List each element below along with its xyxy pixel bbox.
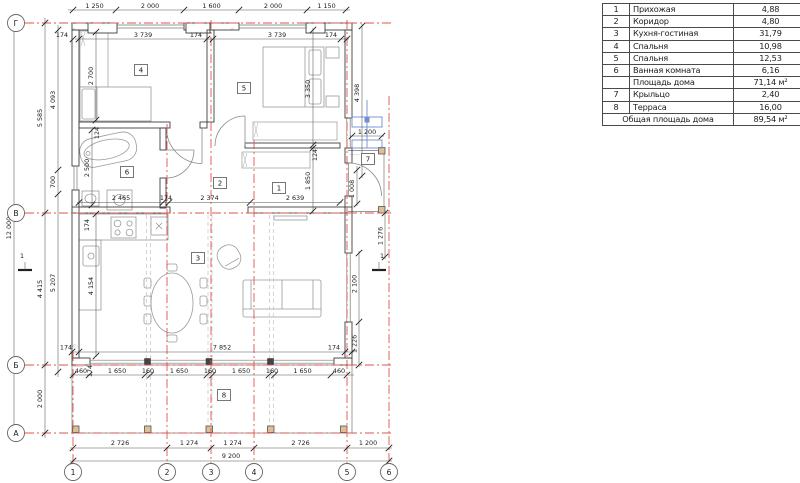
table-row: 6 Ванная комната 6,16: [603, 65, 800, 77]
dim-label: 4 398: [353, 84, 361, 102]
table-row: 1 Прихожая 4,88: [603, 4, 800, 16]
window: [74, 166, 77, 190]
area-table-grid: 1 Прихожая 4,88 2 Коридор 4,80 3 Кухня-г…: [602, 3, 800, 126]
wall: [245, 143, 340, 148]
dim-label: 1 600: [202, 2, 220, 10]
dim-label: 460: [333, 367, 345, 375]
section-label: 1: [20, 252, 24, 260]
floorplan-drawing: 1 250 2 000 1 600 2 000 1 150 174 3 739 …: [0, 0, 600, 483]
room-num-cell: 7: [603, 89, 630, 101]
dim-label: 5 207: [49, 274, 57, 292]
room-num-cell: 1: [603, 4, 630, 16]
door-arc: [167, 128, 203, 164]
table-row: 5 Спальня 12,53: [603, 52, 800, 64]
room-number: 6: [125, 169, 130, 177]
table-row: 3 Кухня-гостиная 31,79: [603, 28, 800, 40]
table-total-row: Общая площадь дома 89,54 м²: [603, 113, 800, 125]
chair-icon: [200, 296, 207, 306]
wall: [248, 207, 352, 213]
chair-icon: [144, 296, 151, 306]
room-area-cell: 4,80: [734, 16, 800, 28]
dim-label: 1 650: [108, 367, 126, 375]
room-area-cell: 4,88: [734, 4, 800, 16]
wall: [160, 128, 166, 150]
axis-bubble-label: 2: [165, 468, 170, 477]
room-number: 8: [222, 392, 226, 400]
dim-label: 160: [142, 367, 154, 375]
dim-label: 2 374: [200, 194, 218, 202]
wall: [207, 30, 214, 122]
room-name-cell: Ванная комната: [630, 65, 734, 77]
dim-label: 1 226: [351, 335, 359, 353]
room-number: 7: [366, 156, 370, 164]
terrace-post: [73, 426, 80, 433]
chair-icon: [200, 278, 207, 288]
dim-label: 1 150: [317, 2, 335, 10]
dim-label: 160: [204, 367, 216, 375]
wardrobe-icon: [253, 122, 337, 140]
dim-label: 174: [86, 365, 94, 377]
room-area-cell: 31,79: [734, 28, 800, 40]
dining-table-icon: [151, 273, 193, 333]
room-name-cell: Крыльцо: [630, 89, 734, 101]
dim-label: 1 650: [170, 367, 188, 375]
axis-bubble-label: 3: [209, 468, 214, 477]
wall: [200, 122, 207, 128]
total-value-cell: 89,54 м²: [734, 113, 800, 125]
room-name-cell: Спальня: [630, 52, 734, 64]
axis-bubble-label: Г: [14, 19, 19, 28]
chair-icon: [167, 335, 177, 342]
room-area-cell: 71,14 м²: [734, 77, 800, 89]
dim-label: 2 700: [87, 67, 95, 85]
axis-bubble-label: 6: [387, 468, 392, 477]
axis-bubble-label: 1: [71, 468, 76, 477]
wall: [345, 148, 352, 163]
pillow-icon: [309, 50, 321, 75]
dim-label: 174: [328, 344, 340, 352]
dim-label: 2 639: [286, 194, 304, 202]
wall: [72, 207, 170, 213]
dim-label: 9 200: [222, 452, 240, 460]
room-num-cell: 4: [603, 40, 630, 52]
wall: [345, 196, 352, 253]
dim-label: 7 852: [213, 344, 231, 352]
dim-label: 2 000: [36, 390, 44, 408]
room-num-cell: 8: [603, 101, 630, 113]
wall: [72, 358, 90, 365]
door-bathroom: [166, 150, 194, 178]
room-name-cell: Коридор: [630, 16, 734, 28]
dim-label: 2 500: [83, 159, 91, 177]
dim-label: 2 100: [351, 275, 359, 293]
dim-label: 1 650: [232, 367, 250, 375]
dim-label: 3 739: [268, 31, 286, 39]
dim-label: 4 093: [49, 91, 57, 109]
axis-bubble-label: 4: [252, 468, 257, 477]
room-name-cell: Прихожая: [630, 4, 734, 16]
dim-label: 174: [325, 31, 337, 39]
door-room5: [215, 116, 245, 146]
room-num-cell: [603, 77, 630, 89]
dim-label: 124: [311, 149, 319, 161]
wall: [72, 30, 79, 166]
room-area-cell: 10,98: [734, 40, 800, 52]
washbasin-icon: [82, 191, 99, 206]
chair-icon: [144, 314, 151, 324]
sink-icon: [83, 246, 99, 266]
dim-label: 124: [93, 127, 101, 139]
dim-label: 700: [49, 176, 57, 188]
porch-post: [379, 207, 386, 214]
table-row: 2 Коридор 4,80: [603, 16, 800, 28]
dim-label: 2 000: [264, 2, 282, 10]
dim-label: 160: [266, 367, 278, 375]
dim-label: 4 415: [36, 280, 44, 298]
area-table: 1 Прихожая 4,88 2 Коридор 4,80 3 Кухня-г…: [602, 3, 798, 126]
nightstand-icon: [326, 47, 339, 58]
table-row: 7 Крыльцо 2,40: [603, 89, 800, 101]
table-row: 8 Терраса 16,00: [603, 101, 800, 113]
window-symbol: [352, 100, 382, 148]
door-room4: [167, 128, 203, 164]
mullion-post: [145, 359, 151, 365]
tv-icon: [274, 216, 307, 220]
dim-label: 1 650: [293, 367, 311, 375]
window: [117, 25, 184, 28]
terrace-post: [268, 426, 275, 433]
dim-label: 174: [190, 31, 202, 39]
wall: [334, 358, 352, 365]
wall-pier: [88, 23, 117, 33]
table-row: Площадь дома 71,14 м²: [603, 77, 800, 89]
chair-icon: [200, 314, 207, 324]
chair-icon: [167, 264, 177, 271]
door-arc: [166, 150, 194, 178]
nightstand-icon: [326, 96, 339, 107]
room-area-cell: 6,16: [734, 65, 800, 77]
room-number: 2: [218, 180, 222, 188]
total-label-cell: Общая площадь дома: [603, 113, 734, 125]
dim-label: 2 726: [111, 439, 129, 447]
terrace-post: [341, 426, 348, 433]
room-number: 3: [196, 255, 200, 263]
dim-label: 1 008: [348, 180, 356, 198]
axis-bubble-label: 5: [345, 468, 350, 477]
dim-label: 1 250: [85, 2, 103, 10]
room-number: 5: [242, 85, 246, 93]
porch-post: [379, 148, 386, 155]
dim-label: 3 350: [304, 80, 312, 98]
armchair-icon: [213, 241, 244, 273]
dim-label: 1 850: [304, 172, 312, 190]
wardrobe-icon: [242, 152, 310, 168]
chair-icon: [144, 278, 151, 288]
room-num-cell: 5: [603, 52, 630, 64]
dim-label: 4 154: [87, 277, 95, 295]
dim-label: 174: [83, 219, 91, 231]
terrace-post: [145, 426, 152, 433]
axis-bubble-label: Б: [13, 361, 18, 370]
dim-label: 2 465: [112, 194, 130, 202]
dim-label: 2 000: [141, 2, 159, 10]
room-name-cell: Спальня: [630, 40, 734, 52]
window-wall-south: [90, 359, 334, 365]
room-num-cell: 6: [603, 65, 630, 77]
terrace-post: [206, 426, 213, 433]
floorplan-page: 1 250 2 000 1 600 2 000 1 150 174 3 739 …: [0, 0, 800, 483]
room-area-cell: 16,00: [734, 101, 800, 113]
dim-label: 1 200: [358, 128, 376, 136]
section-label: 1: [380, 252, 384, 260]
room-number: 1: [277, 185, 281, 193]
window-symbol-dot: [365, 118, 370, 123]
axis-bubble-label: А: [13, 429, 19, 438]
pillow-icon: [82, 89, 95, 119]
room-name-cell: Площадь дома: [630, 77, 734, 89]
dim-label: 174: [56, 31, 68, 39]
dim-label: 5 585: [36, 109, 44, 127]
dim-label: 2 726: [291, 439, 309, 447]
room-name-cell: Кухня-гостиная: [630, 28, 734, 40]
dim-label: 1 274: [180, 439, 198, 447]
dim-label: 1 200: [359, 439, 377, 447]
table-row: 4 Спальня 10,98: [603, 40, 800, 52]
dim-label: 1 274: [223, 439, 241, 447]
room-number: 4: [139, 67, 144, 75]
room-num-cell: 3: [603, 28, 630, 40]
dim-label: 174: [60, 344, 72, 352]
room-area-cell: 2,40: [734, 89, 800, 101]
window: [239, 25, 307, 28]
mullion-post: [268, 359, 274, 365]
armchair-body: [213, 241, 244, 273]
axis-bubble-label: В: [13, 209, 18, 218]
room-area-cell: 12,53: [734, 52, 800, 64]
wall: [345, 30, 352, 118]
room-num-cell: 2: [603, 16, 630, 28]
dim-label: 174: [160, 194, 172, 202]
room-name-cell: Терраса: [630, 101, 734, 113]
door-arc: [215, 116, 245, 146]
dim-label: 3 739: [134, 31, 152, 39]
wall: [72, 190, 79, 358]
dim-label: 1 276: [377, 227, 385, 245]
wall: [160, 178, 166, 208]
